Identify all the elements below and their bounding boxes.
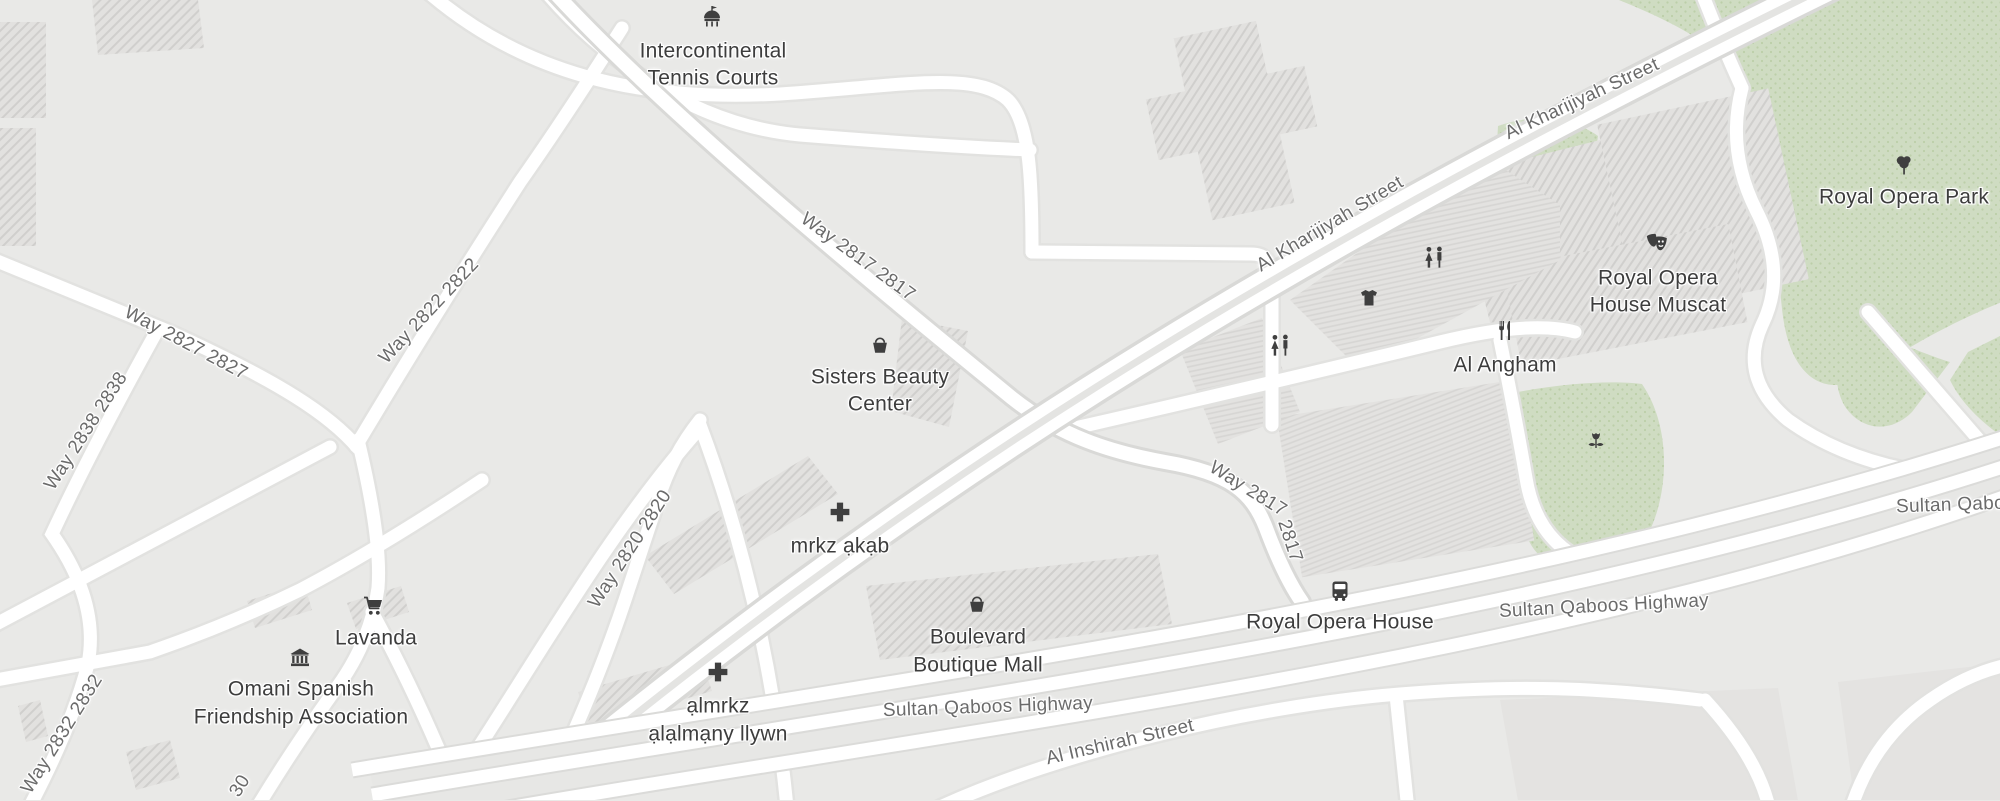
attraction-icon[interactable] xyxy=(700,5,724,29)
poi-label-sisters-line2[interactable]: Center xyxy=(848,394,912,415)
poi-label-mrkz-akab[interactable]: mrkz ạkạb xyxy=(791,536,890,557)
poi-label-almrkz-line2[interactable]: ạlạlmạny llywn xyxy=(648,724,787,745)
theater-masks-icon[interactable] xyxy=(1643,230,1671,256)
poi-label-tennis-line2[interactable]: Tennis Courts xyxy=(648,68,779,89)
toilets-icon[interactable] xyxy=(1421,245,1448,272)
museum-icon[interactable] xyxy=(288,646,312,670)
poi-label-opera-house-line1[interactable]: Royal Opera xyxy=(1598,268,1718,289)
toilets-icon[interactable] xyxy=(1267,333,1294,360)
clothing-store-icon[interactable] xyxy=(1357,286,1381,310)
poi-label-almrkz-line1[interactable]: ạlmrkz xyxy=(686,696,749,717)
poi-label-sisters-line1[interactable]: Sisters Beauty xyxy=(811,367,949,388)
poi-label-opera-park[interactable]: Royal Opera Park xyxy=(1819,187,1989,208)
poi-label-al-angham[interactable]: Al Angham xyxy=(1453,355,1556,376)
poi-label-boulevard-line1[interactable]: Boulevard xyxy=(930,627,1026,648)
poi-label-boulevard-line2[interactable]: Boutique Mall xyxy=(913,655,1043,676)
tree-icon[interactable] xyxy=(1892,153,1916,177)
poi-label-opera-house-line2[interactable]: House Muscat xyxy=(1590,295,1727,316)
shopping-cart-icon[interactable] xyxy=(361,594,385,618)
medical-cross-icon[interactable] xyxy=(706,660,731,685)
poi-label-lavanda[interactable]: Lavanda xyxy=(335,628,417,649)
shop-basket-icon[interactable] xyxy=(869,334,891,356)
poi-label-omani-line2[interactable]: Friendship Association xyxy=(194,707,409,728)
garden-flower-icon[interactable] xyxy=(1584,429,1608,453)
poi-label-tennis-line1[interactable]: Intercontinental xyxy=(640,41,787,62)
poi-label-opera-bus-stop[interactable]: Royal Opera House xyxy=(1246,612,1434,633)
map-canvas[interactable]: Intercontinental Tennis Courts Sisters B… xyxy=(0,0,2000,800)
medical-cross-icon[interactable] xyxy=(828,500,853,525)
poi-label-omani-line1[interactable]: Omani Spanish xyxy=(228,679,374,700)
bus-icon[interactable] xyxy=(1328,579,1352,603)
shop-basket-icon[interactable] xyxy=(966,593,988,615)
road-label-sultan-qaboos-3-cut: Sultan Qabo xyxy=(1896,494,2000,517)
restaurant-icon[interactable] xyxy=(1493,319,1517,343)
